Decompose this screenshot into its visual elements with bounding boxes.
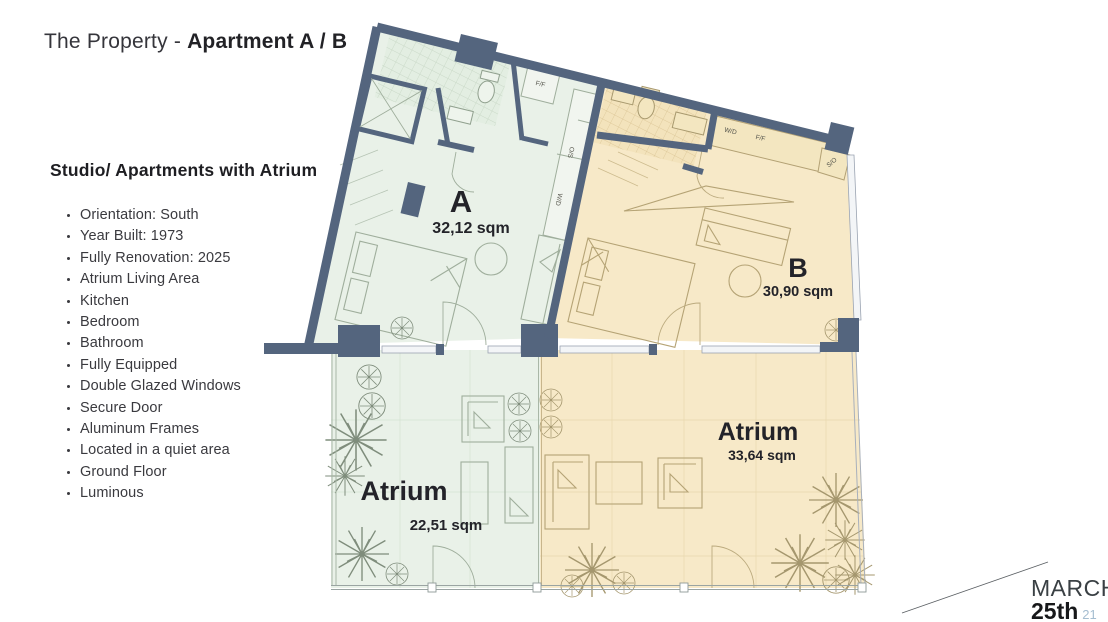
plant-icon — [357, 365, 381, 389]
atrium-b-label: Atrium — [718, 418, 799, 446]
wall-post — [436, 344, 444, 355]
wall-corner-ne — [824, 122, 854, 155]
wall-corner-e — [838, 318, 859, 344]
plant-icon — [359, 393, 385, 419]
apartment-a-label: A — [450, 184, 472, 219]
apartment-a-area: 32,12 sqm — [432, 220, 509, 237]
window — [488, 346, 521, 353]
plant-icon — [508, 393, 530, 415]
wall-stub-e — [820, 342, 859, 352]
fence-post — [428, 583, 436, 592]
window — [702, 346, 820, 353]
fence-post — [858, 583, 866, 592]
fence-post — [533, 583, 541, 592]
date-block: MARCH 25th21 — [1031, 577, 1108, 622]
plant-icon — [540, 389, 562, 411]
apartment-b-area: 30,90 sqm — [763, 284, 833, 300]
plant-icon — [613, 572, 635, 594]
wall-pillar-w — [338, 325, 380, 357]
floor-plan: A 32,12 sqm B 30,90 sqm Atrium 22,51 sqm… — [0, 0, 1108, 622]
date-year: 21 — [1082, 607, 1096, 622]
footer-diagonal-line — [902, 562, 1048, 613]
atrium-a-label: Atrium — [361, 476, 448, 506]
window — [560, 346, 649, 353]
fence-post — [680, 583, 688, 592]
atrium-b-area: 33,64 sqm — [728, 447, 796, 463]
date-month: MARCH — [1031, 577, 1108, 600]
plant-icon — [386, 563, 408, 585]
atrium-a-area: 22,51 sqm — [410, 517, 483, 534]
plant-icon — [391, 317, 413, 339]
window — [382, 346, 436, 353]
wall-post — [649, 344, 657, 355]
date-day: 25th — [1031, 598, 1078, 622]
wall-stub-w — [264, 343, 344, 354]
plant-icon — [540, 416, 562, 438]
plant-icon — [509, 420, 531, 442]
apartment-b-label: B — [788, 253, 808, 283]
slide: The Property - Apartment A / B Studio/ A… — [0, 0, 1108, 622]
